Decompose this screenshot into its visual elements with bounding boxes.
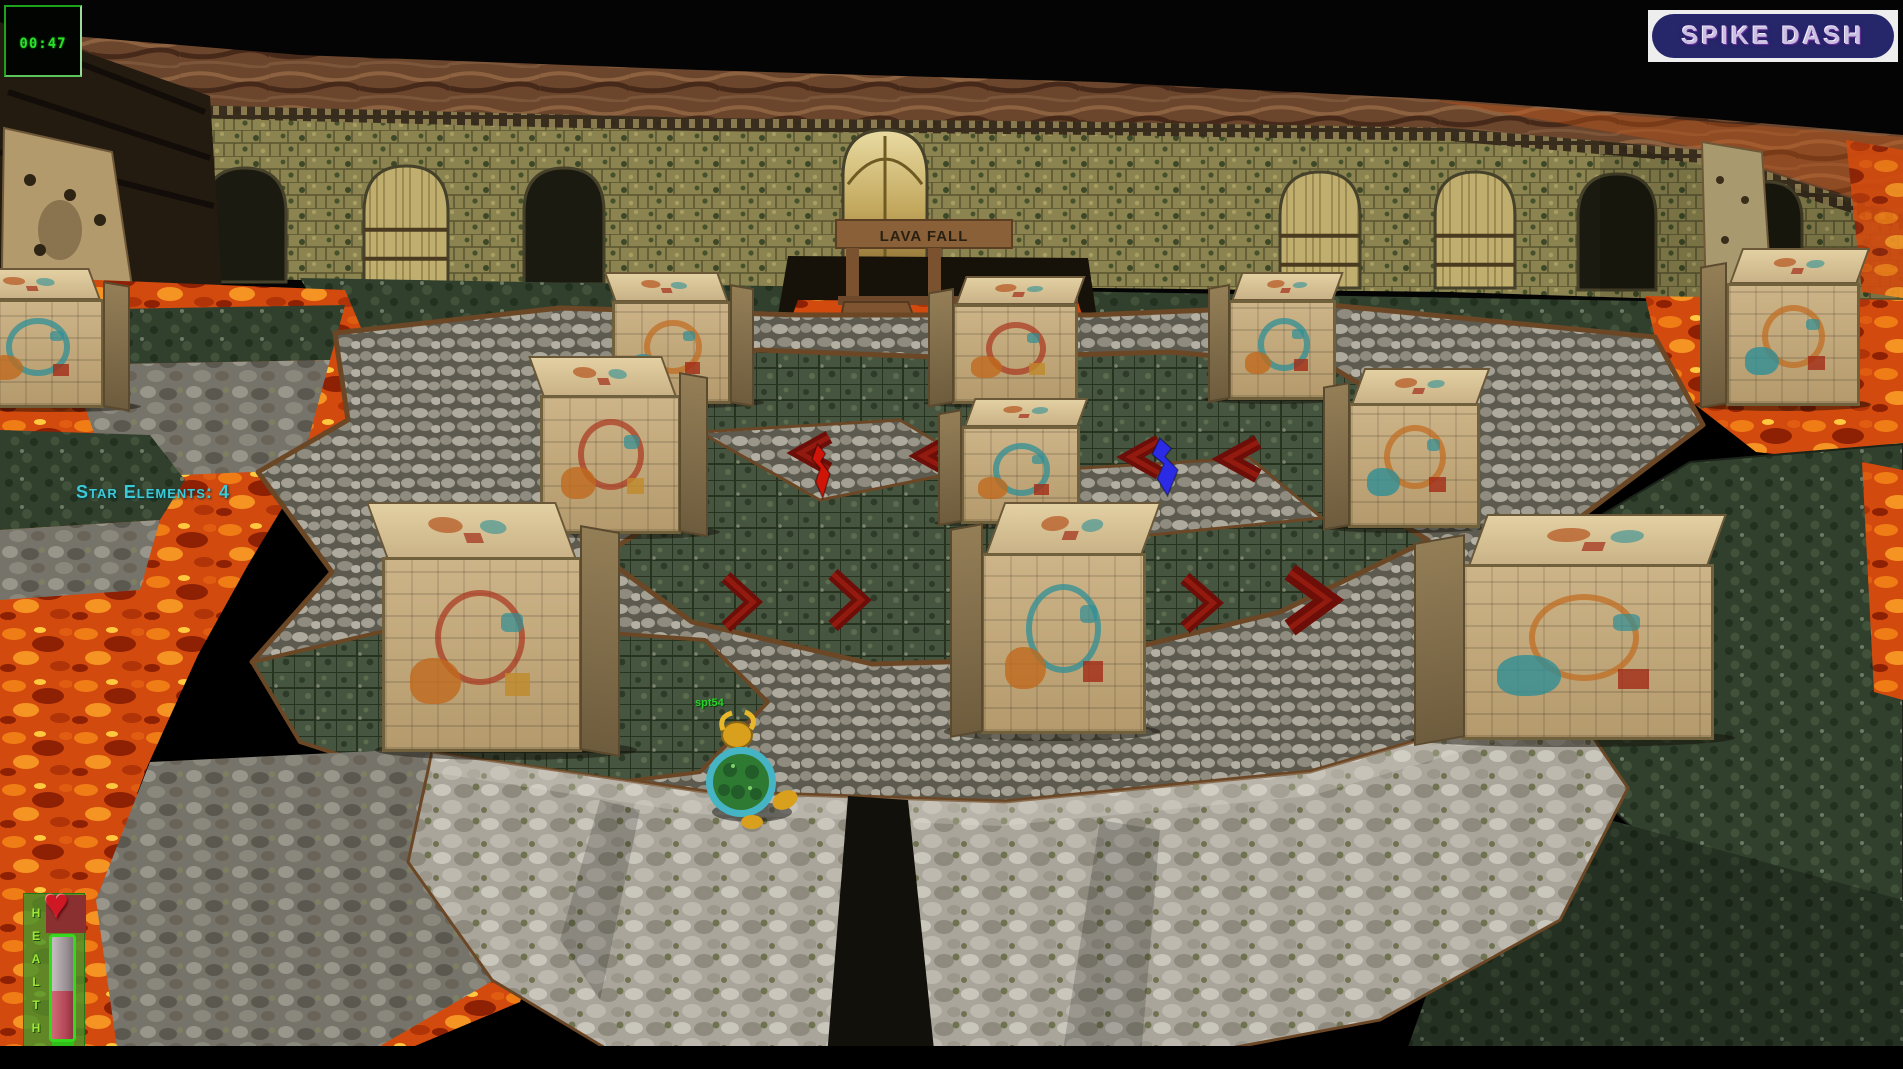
wood-arch-door (364, 166, 448, 282)
logo-pill: SPIKE DASH (1652, 14, 1894, 58)
game-scene: LAVA FALL (0, 0, 1903, 1069)
health-gauge (49, 934, 76, 1042)
turtle-shell (713, 754, 769, 810)
gate-sign-text: LAVA FALL (880, 228, 969, 245)
right-corner-pillar (1702, 142, 1772, 302)
health-gauge-fill (52, 991, 73, 1039)
wood-arch-door (1435, 172, 1515, 288)
turtle-foot (741, 815, 763, 829)
turtle-head (722, 722, 752, 748)
wood-arch-door (1280, 172, 1360, 288)
player-name-label: spt54 (695, 697, 724, 709)
health-panel: HEALTH ♥ (23, 893, 85, 1047)
health-label: HEALTH (29, 902, 43, 1040)
letterbox-bar (0, 1046, 1903, 1069)
star-elements-counter: Star Elements: 4 (76, 482, 230, 503)
countdown-timer: 00:47 (4, 5, 82, 77)
heart-icon: ♥ (44, 880, 69, 928)
wooden-fence (946, 298, 1078, 305)
dark-arch-door (524, 168, 604, 284)
logo-text: SPIKE DASH (1682, 22, 1865, 51)
game-viewport[interactable]: LAVA FALL (0, 0, 1903, 1069)
game-logo: SPIKE DASH (1648, 10, 1898, 62)
